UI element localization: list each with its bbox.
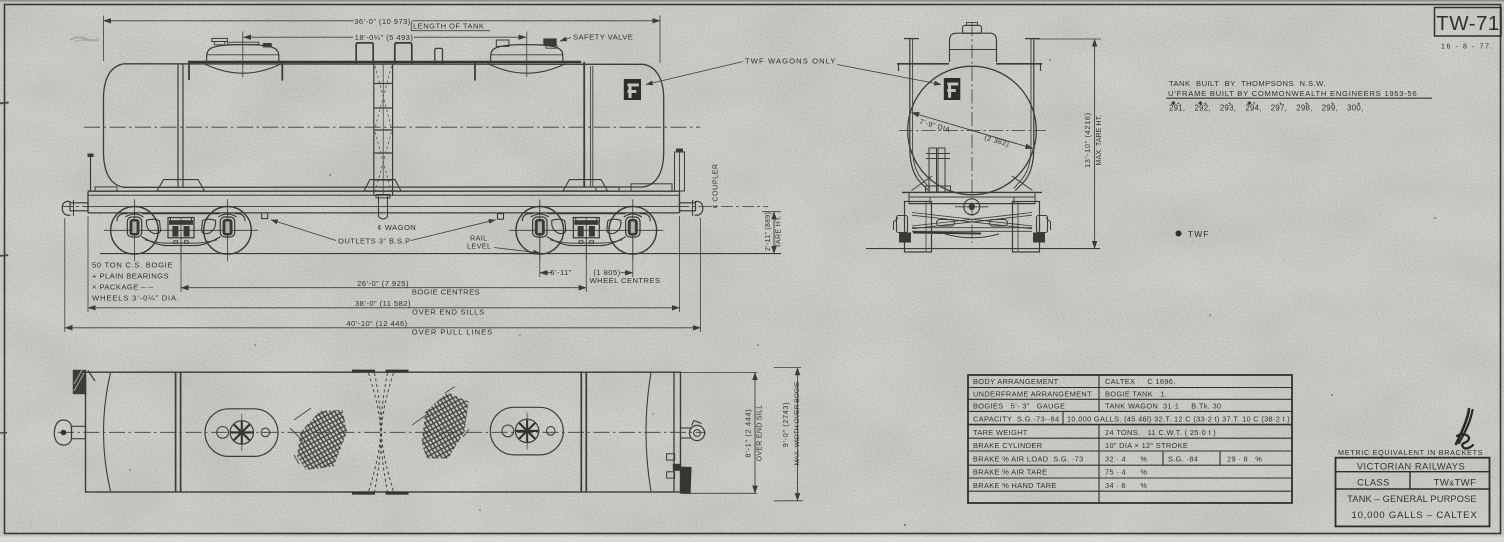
svg-text:OVER PULL LINES: OVER PULL LINES — [412, 328, 493, 337]
svg-text:291, 292, 293, 294, 297, 298,: 291, 292, 293, 294, 297, 298, 299, 300, — [1169, 104, 1363, 113]
svg-text:34 · 6 %: 34 · 6 % — [1105, 481, 1147, 490]
svg-text:MAX. WIDTH OVER BOGIE: MAX. WIDTH OVER BOGIE — [794, 381, 801, 465]
svg-text:5’-11”: 5’-11” — [550, 268, 572, 277]
svg-text:CLASS: CLASS — [1357, 477, 1390, 487]
svg-text:TW&TWF: TW&TWF — [1434, 478, 1477, 489]
svg-text:38’-0” (11 582): 38’-0” (11 582) — [355, 299, 411, 308]
svg-text:29 · 8 %: 29 · 8 % — [1227, 455, 1262, 464]
svg-text:LEVEL: LEVEL — [467, 241, 491, 250]
svg-text:BOGIES 5’- 3” GAUGE: BOGIES 5’- 3” GAUGE — [973, 402, 1065, 411]
svg-text:32 · 4 %: 32 · 4 % — [1105, 455, 1147, 464]
svg-text:SAFETY VALVE: SAFETY VALVE — [573, 33, 633, 42]
svg-text:TARE WEIGHT: TARE WEIGHT — [973, 428, 1028, 437]
svg-text:TANK BUILT BY THOMPSONS N.: TANK BUILT BY THOMPSONS N.S.W. — [1169, 79, 1326, 88]
svg-text:LENGTH OF TANK: LENGTH OF TANK — [413, 22, 484, 31]
svg-text:18’-0¼” (5 493): 18’-0¼” (5 493) — [355, 33, 414, 42]
svg-text:8’-1” (2 444): 8’-1” (2 444) — [744, 409, 753, 458]
svg-text:10,000 GALLS. (45 46l) 32.T. 1: 10,000 GALLS. (45 46l) 32.T. 12 C (33·2 … — [1067, 415, 1290, 424]
svg-text:BODY ARRANGEMENT: BODY ARRANGEMENT — [973, 377, 1059, 386]
svg-text:× PACKAGE –·–: × PACKAGE –·– — [92, 283, 154, 292]
svg-text:WHEELS 3’-0¼” DIA.: WHEELS 3’-0¼” DIA. — [92, 294, 180, 303]
svg-text:TANK WAGON 31·1 B.Tk. 30: TANK WAGON 31·1 B.Tk. 30 — [1105, 402, 1222, 411]
svg-text:BRAKE % HAND TARE: BRAKE % HAND TARE — [973, 481, 1057, 490]
svg-text:16 - 8 - 77.: 16 - 8 - 77. — [1441, 44, 1494, 51]
svg-text:U’FRAME BUILT BY COMMONWEAL: U’FRAME BUILT BY COMMONWEALTH ENGINEERS … — [1168, 89, 1417, 98]
svg-text:METRIC EQUIVALENT IN BRACKE: METRIC EQUIVALENT IN BRACKETS — [1338, 448, 1483, 457]
svg-text:BRAKE CYLINDER: BRAKE CYLINDER — [973, 441, 1042, 450]
svg-text:OUTLETS 3” B.S.P: OUTLETS 3” B.S.P — [338, 236, 411, 245]
svg-text:24 TONS. 11 C.W.T. ( 25·0 t: 24 TONS. 11 C.W.T. ( 25·0 t ) — [1105, 428, 1216, 437]
svg-text:BRAKE % AIR LOAD S.G. ·73: BRAKE % AIR LOAD S.G. ·73 — [973, 455, 1084, 464]
svg-text:TWF: TWF — [1188, 229, 1209, 239]
svg-text:10,000 GALLS – CALTEX: 10,000 GALLS – CALTEX — [1352, 510, 1478, 521]
svg-text:50 TON C.S. BOGIE: 50 TON C.S. BOGIE — [92, 261, 173, 270]
svg-text:TARE HT.: TARE HT. — [776, 215, 783, 248]
svg-text:S.G. ·84: S.G. ·84 — [1168, 455, 1198, 464]
svg-text:10” DIA × 12” STROKE: 10” DIA × 12” STROKE — [1105, 441, 1188, 450]
svg-text:MAX. TARE HT.: MAX. TARE HT. — [1096, 115, 1103, 166]
svg-text:75 · 4 %: 75 · 4 % — [1105, 468, 1147, 477]
svg-text:¢ WAGON: ¢ WAGON — [378, 223, 417, 232]
svg-text:TW-71: TW-71 — [1436, 12, 1500, 35]
svg-text:VICTORIAN RAILWAYS: VICTORIAN RAILWAYS — [1357, 461, 1465, 471]
svg-text:36’-0” (10 973): 36’-0” (10 973) — [354, 17, 411, 26]
svg-text:BOGIE CENTRES: BOGIE CENTRES — [412, 287, 480, 296]
svg-text:+ PLAIN BEARINGS: + PLAIN BEARINGS — [92, 272, 169, 281]
svg-text:40’-10” (12 446): 40’-10” (12 446) — [346, 319, 407, 328]
svg-text:9’-0” (2743): 9’-0” (2743) — [781, 402, 790, 448]
svg-text:UNDERFRAME ARRANGEMENT: UNDERFRAME ARRANGEMENT — [973, 390, 1092, 399]
svg-text:BOGIE TANK 1.: BOGIE TANK 1. — [1105, 390, 1167, 399]
svg-text:2’-11” (889): 2’-11” (889) — [765, 212, 772, 251]
svg-text:BRAKE % AIR TARE: BRAKE % AIR TARE — [973, 468, 1047, 477]
svg-text:OVER END SILLS: OVER END SILLS — [412, 307, 485, 316]
svg-text:OVER END SILL: OVER END SILL — [757, 405, 764, 462]
svg-text:CALTEX C 1696.: CALTEX C 1696. — [1105, 377, 1176, 386]
svg-text:26’-0” (7 925): 26’-0” (7 925) — [357, 279, 409, 288]
svg-text:TANK – GENERAL PURPOSE: TANK – GENERAL PURPOSE — [1347, 494, 1476, 504]
svg-text:CAPACITY S.G.·73-·84: CAPACITY S.G.·73-·84 — [973, 415, 1059, 424]
svg-text:WHEEL CENTRES: WHEEL CENTRES — [590, 276, 661, 285]
svg-text:¢ COUPLER: ¢ COUPLER — [711, 163, 720, 208]
svg-text:TWF WAGONS ONLY: TWF WAGONS ONLY — [745, 57, 837, 66]
svg-text:13’-10” (4216): 13’-10” (4216) — [1083, 112, 1092, 168]
